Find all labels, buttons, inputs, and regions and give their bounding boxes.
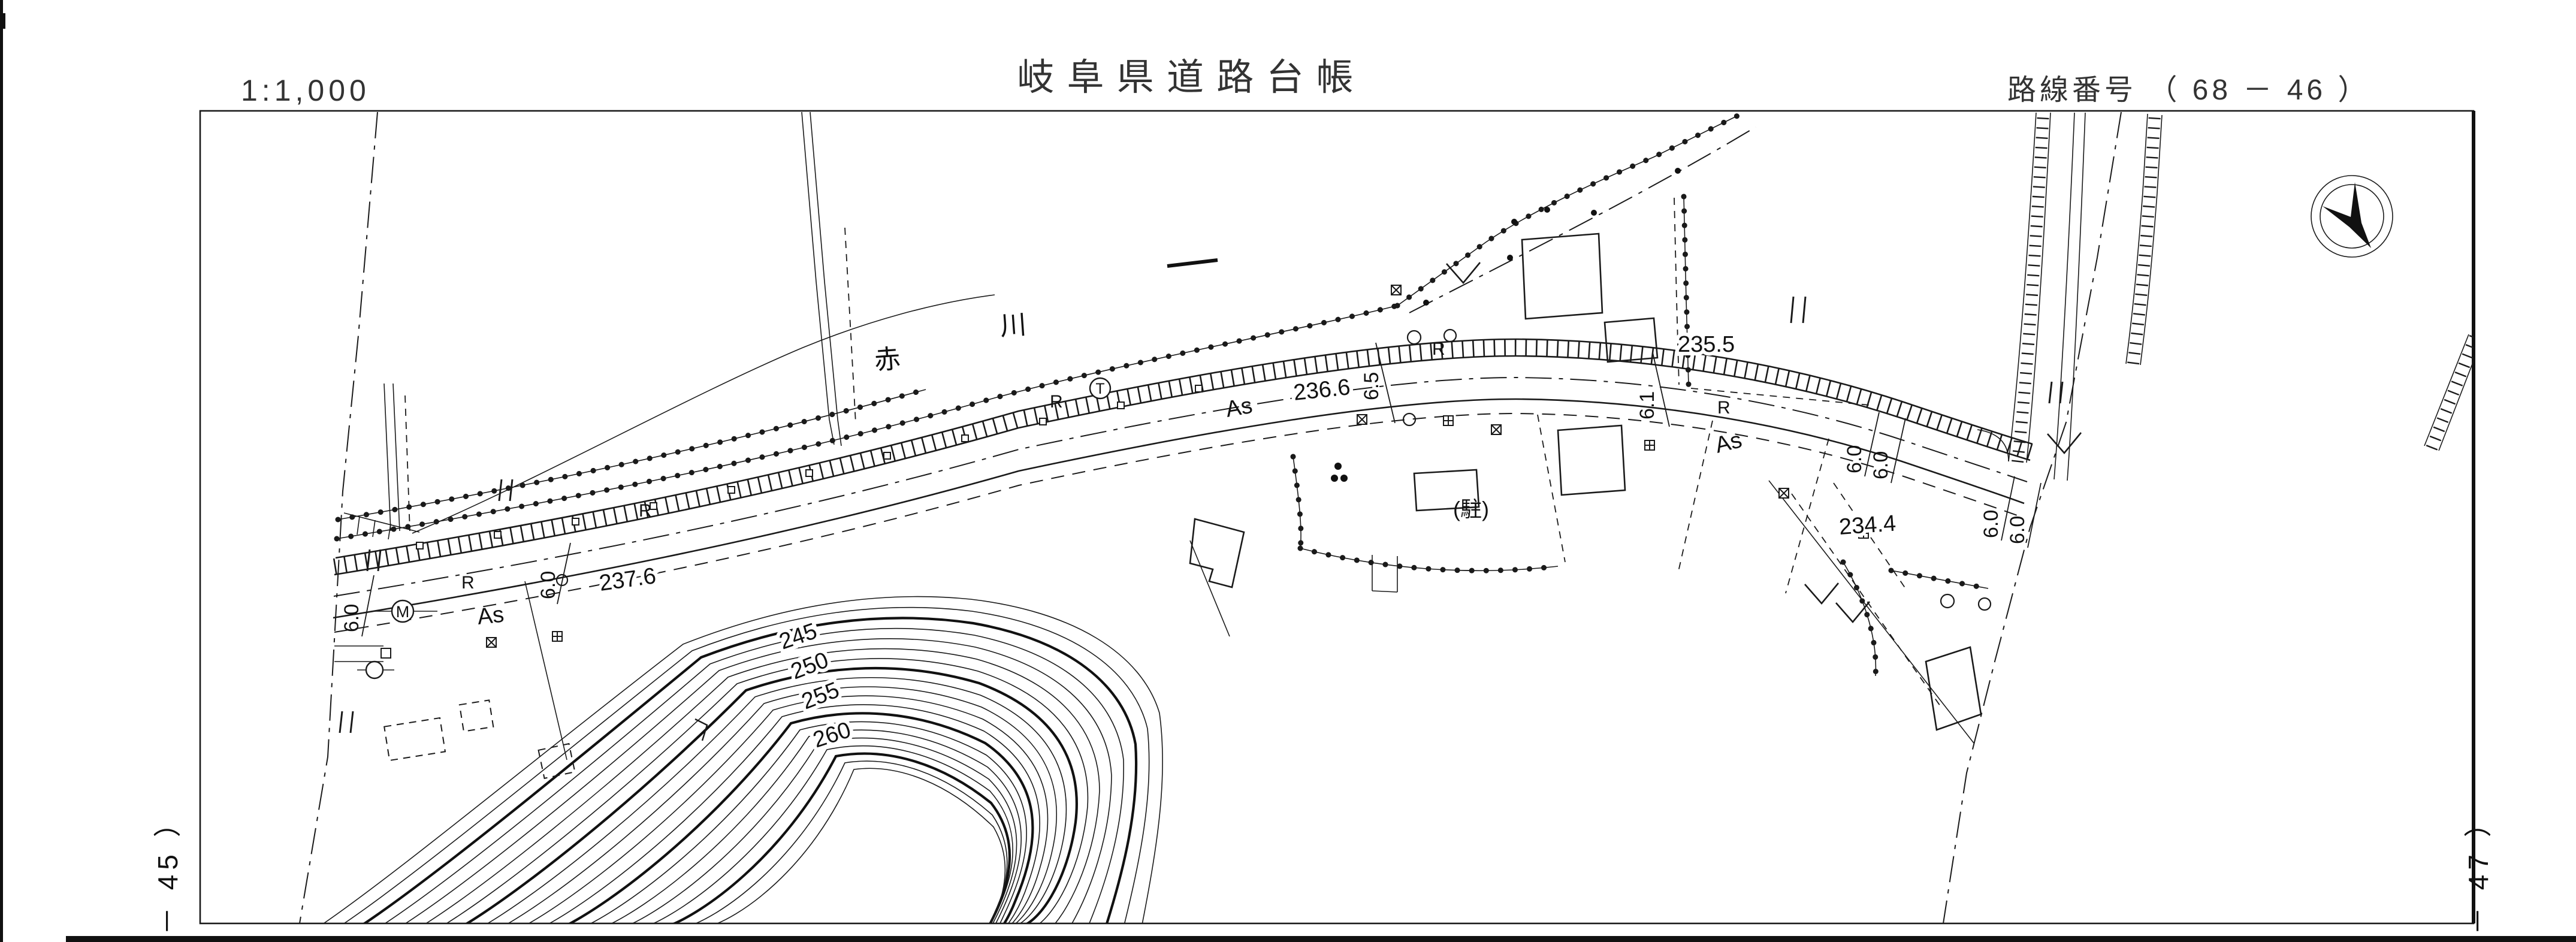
utility-pole-icon: T xyxy=(1090,378,1110,398)
width-label-6-0d: 6.0 xyxy=(1870,451,1892,479)
r-mark-3: R xyxy=(1050,392,1063,412)
route-number-label: 路線番号 （ 68 － 46 ） xyxy=(2007,74,2370,106)
pavement-label-as2: As xyxy=(1224,393,1254,422)
width-label-6-0a: 6.0 xyxy=(340,604,363,632)
sheet-ref-right: － 47 ） xyxy=(2463,805,2494,935)
width-label-6-0f: 6.0 xyxy=(2006,516,2029,544)
r-mark-1: R xyxy=(461,573,475,593)
svg-text:T: T xyxy=(1095,381,1104,397)
scan-edge-left xyxy=(0,0,3,942)
map-canvas: 1:1,000 岐 阜 県 道 路 台 帳 路線番号 （ 68 － 46 ） －… xyxy=(0,0,2576,942)
scale-label: 1:1,000 xyxy=(241,74,370,107)
parking-label: (駐) xyxy=(1453,497,1489,521)
scan-edge-tick xyxy=(0,13,5,29)
width-label-6-0b: 6.0 xyxy=(537,571,560,599)
r-mark-2: R xyxy=(639,501,652,521)
elevation-label-234-4: 234.4 xyxy=(1838,511,1897,540)
paper-background xyxy=(0,0,2576,942)
svg-text:M: M xyxy=(396,603,410,621)
scan-edge-bottom xyxy=(66,936,2576,942)
width-label-6-1: 6.1 xyxy=(1636,391,1659,419)
river-name-char1: 赤 xyxy=(873,344,901,375)
r-mark-4: R xyxy=(1432,339,1445,359)
sheet-ref-left: － 45 ） xyxy=(152,805,183,935)
width-label-6-0c: 6.0 xyxy=(1843,445,1866,473)
pavement-label-as1: As xyxy=(476,602,506,630)
elevation-label-235-5: 235.5 xyxy=(1678,332,1735,357)
width-label-6-0e: 6.0 xyxy=(1980,510,2003,538)
road-ledger-sheet: 1:1,000 岐 阜 県 道 路 台 帳 路線番号 （ 68 － 46 ） －… xyxy=(0,0,2576,942)
river-name-char2: 川 xyxy=(999,310,1027,341)
width-label-6-5: 6.5 xyxy=(1360,372,1383,400)
r-mark-5: R xyxy=(1717,398,1731,418)
page-title: 岐 阜 県 道 路 台 帳 xyxy=(1017,57,1354,98)
